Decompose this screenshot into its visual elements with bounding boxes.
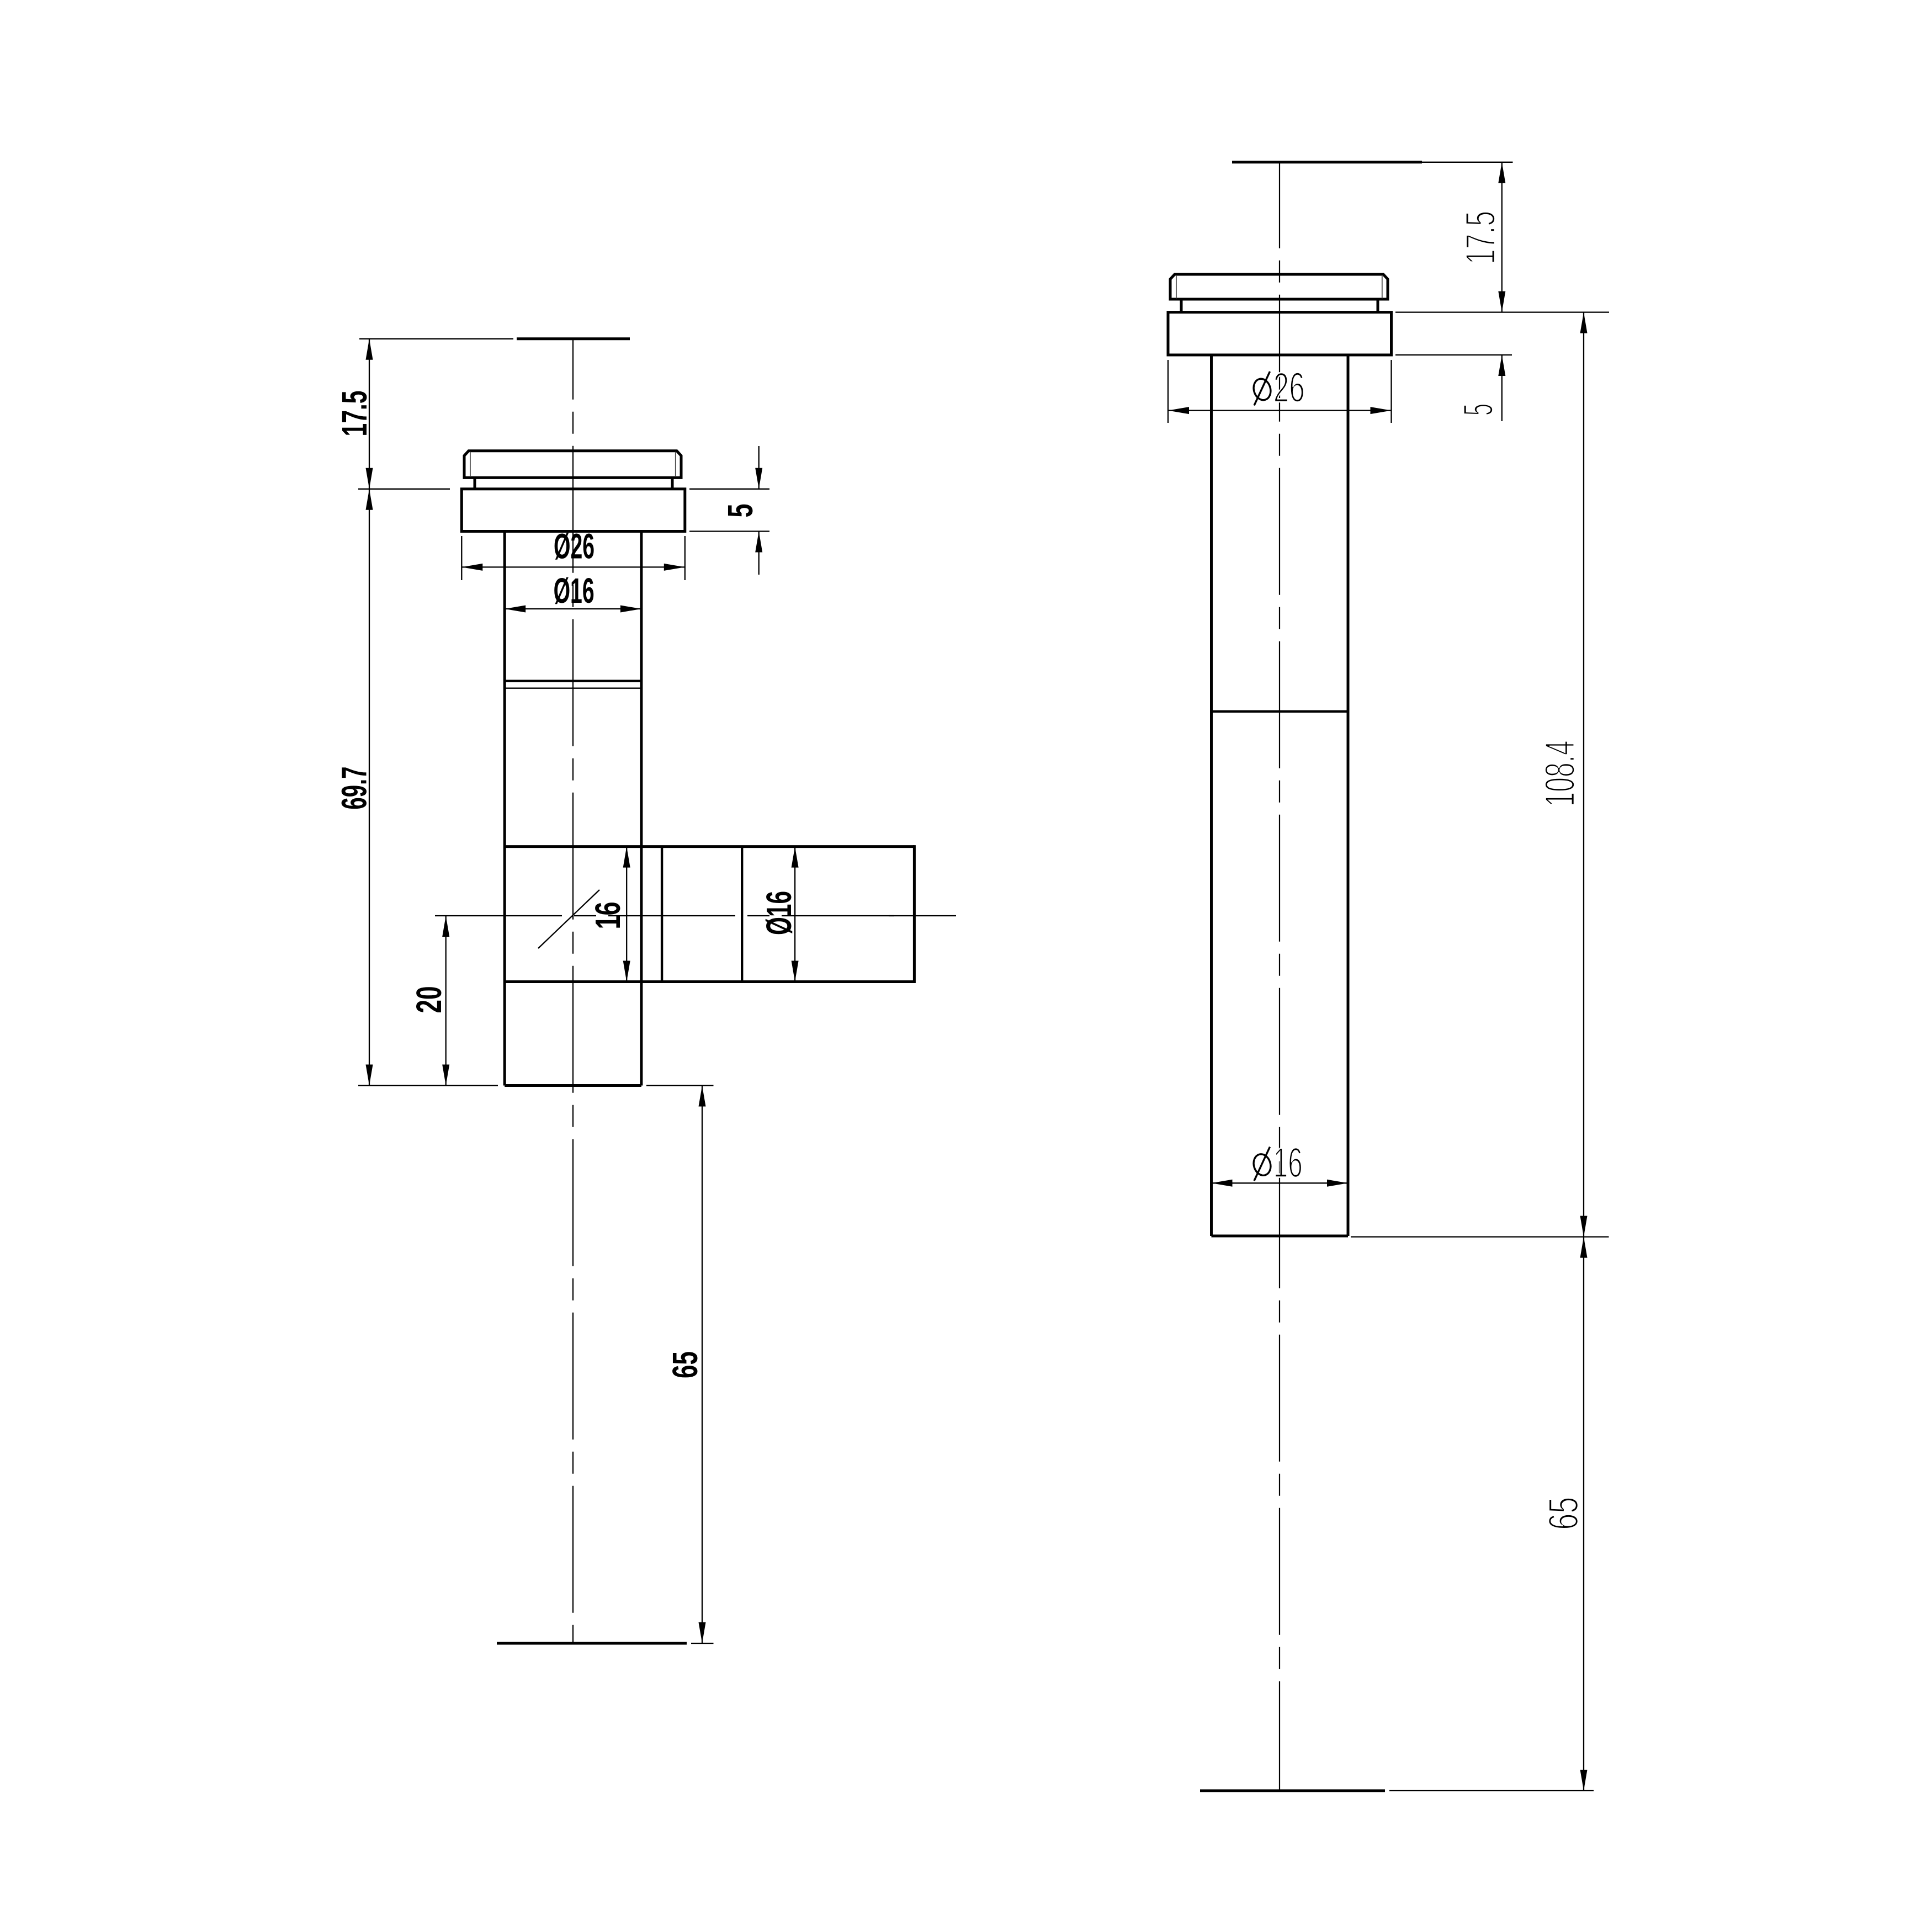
svg-text:17.5: 17.5 bbox=[335, 391, 374, 437]
svg-text:Ø16: Ø16 bbox=[554, 571, 595, 611]
svg-text:Ø16: Ø16 bbox=[759, 891, 799, 935]
svg-text:65: 65 bbox=[1540, 1497, 1587, 1530]
svg-text:108.4: 108.4 bbox=[1537, 740, 1584, 806]
svg-text:Ø26: Ø26 bbox=[554, 527, 595, 566]
svg-text:16: 16 bbox=[1273, 1140, 1303, 1187]
svg-text:69.7: 69.7 bbox=[335, 767, 374, 810]
svg-text:20: 20 bbox=[409, 986, 449, 1013]
svg-text:65: 65 bbox=[665, 1351, 705, 1378]
svg-text:5: 5 bbox=[720, 504, 760, 518]
svg-text:17.5: 17.5 bbox=[1457, 211, 1504, 264]
svg-text:26: 26 bbox=[1273, 364, 1305, 411]
svg-text:5: 5 bbox=[1455, 404, 1502, 416]
svg-text:16: 16 bbox=[588, 902, 628, 930]
